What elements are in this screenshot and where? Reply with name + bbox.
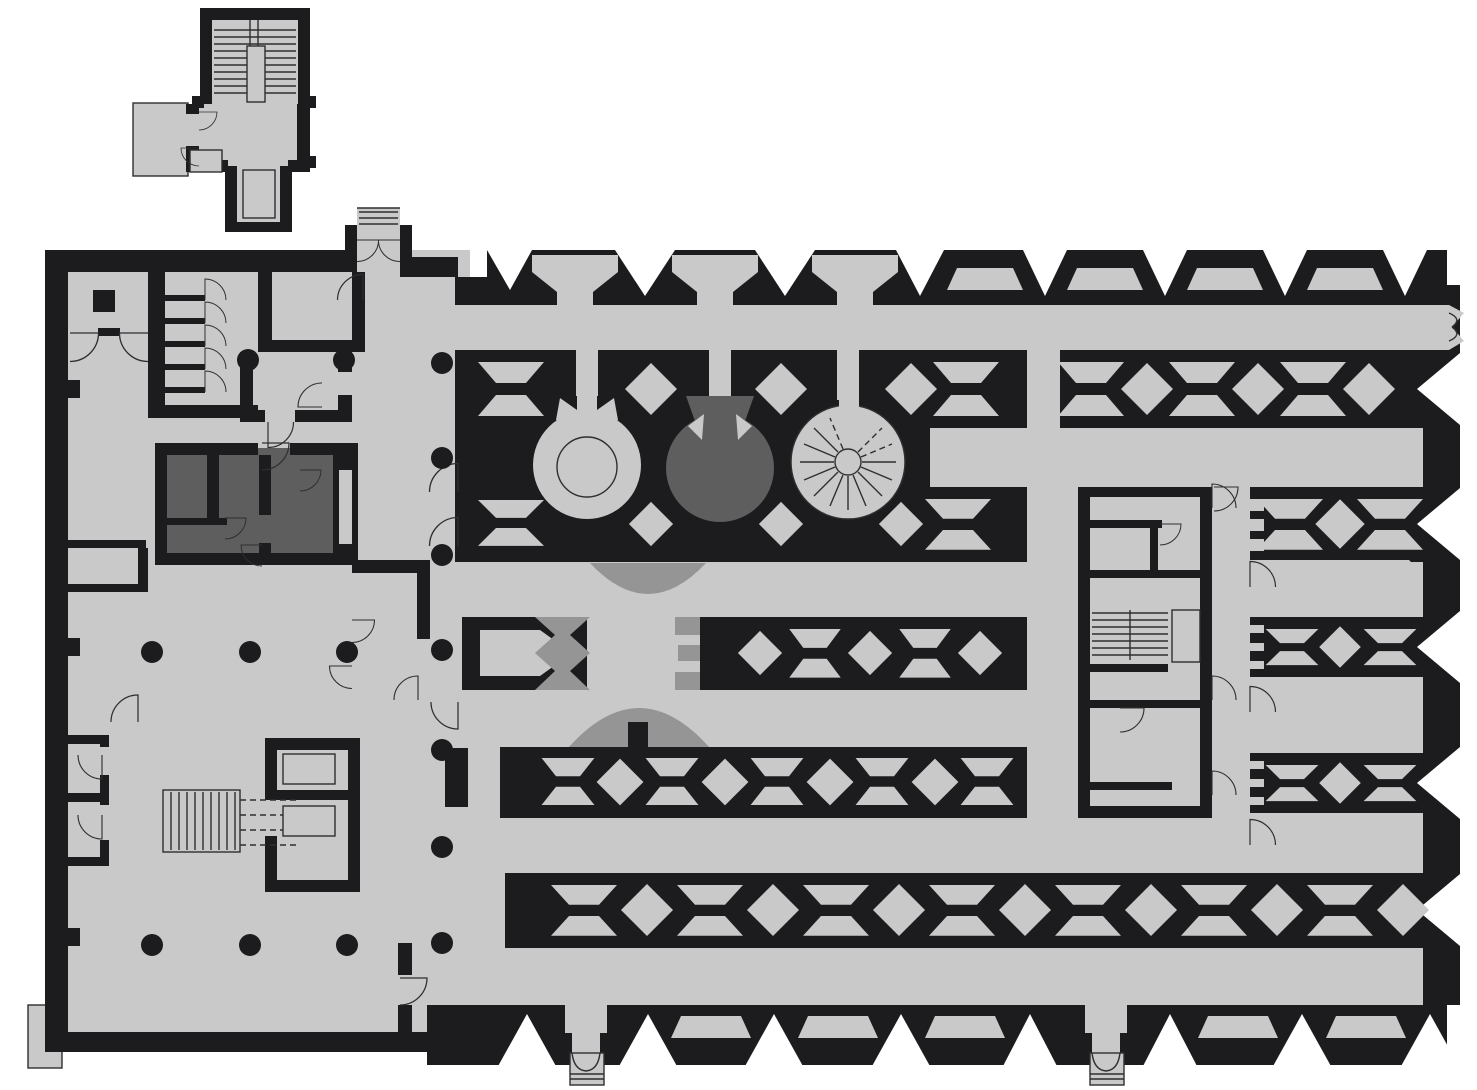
floor-plan-canvas xyxy=(0,0,1477,1090)
annex-terrace xyxy=(133,103,188,176)
screen-row-collar xyxy=(675,617,700,690)
north-entry-bay xyxy=(357,208,400,272)
corridor-b xyxy=(930,432,1423,487)
south-gallery xyxy=(427,948,1423,1005)
annex-closet xyxy=(190,150,222,172)
dark-room-suite xyxy=(160,448,338,560)
annex-passage xyxy=(225,166,292,232)
main-building xyxy=(28,208,1464,1085)
annex-building xyxy=(133,8,316,232)
vertical-corridor-east xyxy=(1212,485,1250,873)
light-shaft xyxy=(339,470,352,544)
elevator-shaft xyxy=(283,754,335,784)
floor-plan-page xyxy=(0,0,1477,1090)
north-bays xyxy=(532,255,898,306)
entry-bay-wall xyxy=(345,225,357,272)
corridor-d xyxy=(1250,687,1423,747)
block-closet xyxy=(1172,610,1200,662)
north-gallery xyxy=(470,305,1413,350)
stack-band-2 xyxy=(930,487,1027,562)
elevator-shaft xyxy=(283,806,335,836)
